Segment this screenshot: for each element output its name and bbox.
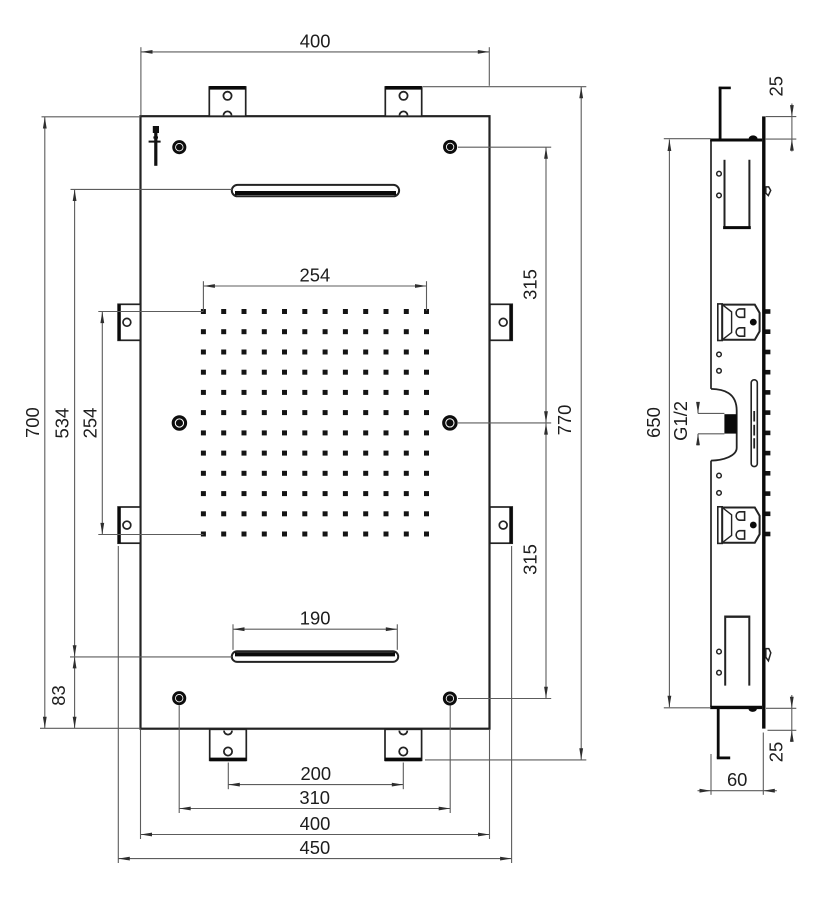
- svg-text:700: 700: [22, 407, 43, 438]
- svg-text:534: 534: [52, 408, 73, 439]
- svg-text:254: 254: [300, 265, 331, 286]
- svg-text:60: 60: [727, 769, 747, 790]
- svg-text:254: 254: [79, 408, 100, 439]
- svg-text:190: 190: [300, 608, 331, 629]
- svg-text:770: 770: [554, 405, 575, 436]
- svg-text:310: 310: [299, 787, 330, 808]
- svg-text:400: 400: [300, 30, 331, 51]
- svg-text:650: 650: [643, 407, 664, 438]
- svg-text:400: 400: [300, 813, 331, 834]
- svg-text:200: 200: [300, 763, 331, 784]
- svg-text:G1/2: G1/2: [670, 401, 691, 441]
- svg-text:25: 25: [765, 742, 786, 762]
- svg-text:83: 83: [48, 685, 69, 705]
- svg-text:315: 315: [519, 544, 540, 575]
- svg-text:25: 25: [765, 76, 786, 96]
- svg-text:315: 315: [519, 269, 540, 300]
- svg-text:450: 450: [300, 837, 331, 858]
